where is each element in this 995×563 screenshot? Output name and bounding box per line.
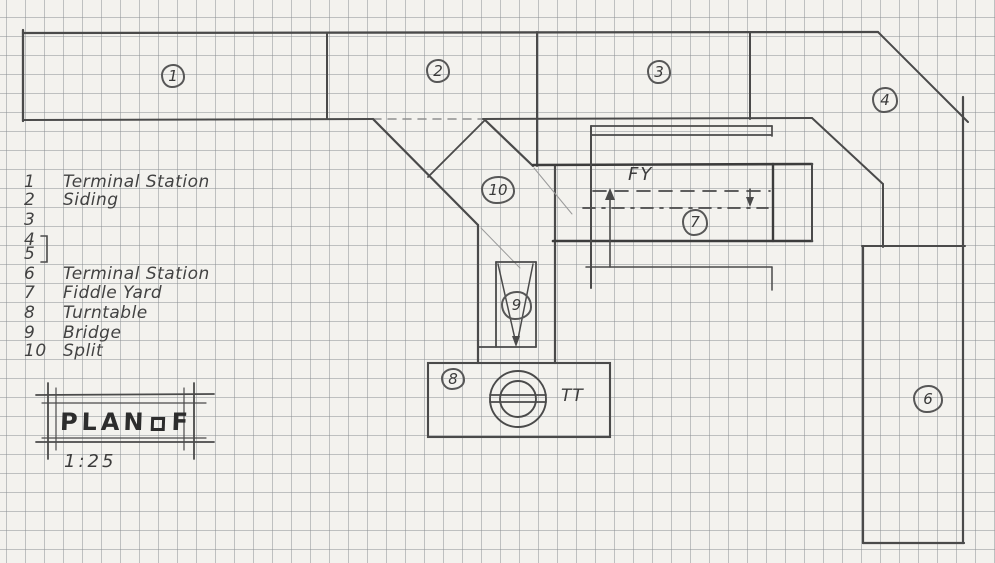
band-bottom-right xyxy=(483,118,812,119)
plan-marker-3: 3 xyxy=(647,60,671,84)
legend-row-5: 5 xyxy=(24,244,63,264)
legend-row-9: 9 Bridge xyxy=(24,323,121,343)
plan-marker-6: 6 xyxy=(913,385,943,413)
legend-row-1: 1 Terminal Station xyxy=(24,172,210,192)
corner-inner-diagonal xyxy=(812,118,883,184)
fiddle-yard-lines xyxy=(533,126,812,290)
plan-marker-1: 1 xyxy=(161,64,185,88)
bridge-v-arrow-tip xyxy=(512,336,520,347)
fy-top-edge xyxy=(533,164,812,165)
plan-marker-2: 2 xyxy=(426,59,450,83)
legend-row-7: 7 Fiddle Yard xyxy=(24,283,162,303)
fy-down-arrow-head xyxy=(746,197,754,207)
legend-num-3: 3 xyxy=(24,210,63,230)
fy-up-arrow-head xyxy=(605,188,615,200)
title-square-icon xyxy=(150,417,164,431)
construction-diagonal-a xyxy=(534,168,572,214)
plan-title-letter: F xyxy=(171,408,192,436)
plan-marker-7: 7 xyxy=(682,209,708,236)
legend-num-9: 9 xyxy=(24,323,63,343)
plan-marker-4: 4 xyxy=(872,87,898,113)
plan-marker-8: 8 xyxy=(441,368,465,390)
legend-num-8: 8 xyxy=(24,303,63,323)
legend-label-8: Turntable xyxy=(63,303,148,323)
legend-num-5: 5 xyxy=(24,244,63,264)
legend-num-1: 1 xyxy=(24,172,63,192)
split-apex-right-edge xyxy=(485,120,533,166)
scale-label: 1:25 xyxy=(64,451,116,472)
band-bottom-left xyxy=(23,119,373,120)
legend-label-9: Bridge xyxy=(63,323,121,343)
plan-marker-10: 10 xyxy=(481,176,515,204)
turntable-inner-circle xyxy=(500,381,536,417)
legend-row-6: 6 Terminal Station xyxy=(24,264,210,284)
legend-num-6: 6 xyxy=(24,264,63,284)
split-long-diagonal xyxy=(373,119,478,225)
legend-label-7: Fiddle Yard xyxy=(63,283,162,303)
legend-num-7: 7 xyxy=(24,283,63,303)
legend-row-2: 2 Siding xyxy=(24,190,119,210)
legend-label-2: Siding xyxy=(63,190,119,210)
legend-row-3: 3 xyxy=(24,210,63,230)
legend-num-2: 2 xyxy=(24,190,63,210)
turntable-label: TT xyxy=(561,386,584,406)
title-frame-outer-top xyxy=(36,394,214,395)
legend-row-8: 8 Turntable xyxy=(24,303,148,323)
plan-title: PLAN F xyxy=(60,408,193,436)
legend-row-10: 10 Split xyxy=(24,341,103,361)
legend-label-1: Terminal Station xyxy=(63,172,210,192)
legend-label-10: Split xyxy=(63,341,103,361)
plan-marker-9: 9 xyxy=(501,291,532,320)
split-apex-left-joint xyxy=(428,120,485,177)
fiddle-yard-label: FY xyxy=(628,164,653,185)
turntable-outer-circle xyxy=(490,371,546,427)
scanned-track-plan: 1 2 3 4 6 7 8 9 10 1 Terminal Station 2 … xyxy=(0,0,995,563)
legend-num-10: 10 xyxy=(24,341,63,361)
legend-label-6: Terminal Station xyxy=(63,264,210,284)
plan-title-word: PLAN xyxy=(60,408,149,436)
split-section-lines xyxy=(373,119,572,363)
